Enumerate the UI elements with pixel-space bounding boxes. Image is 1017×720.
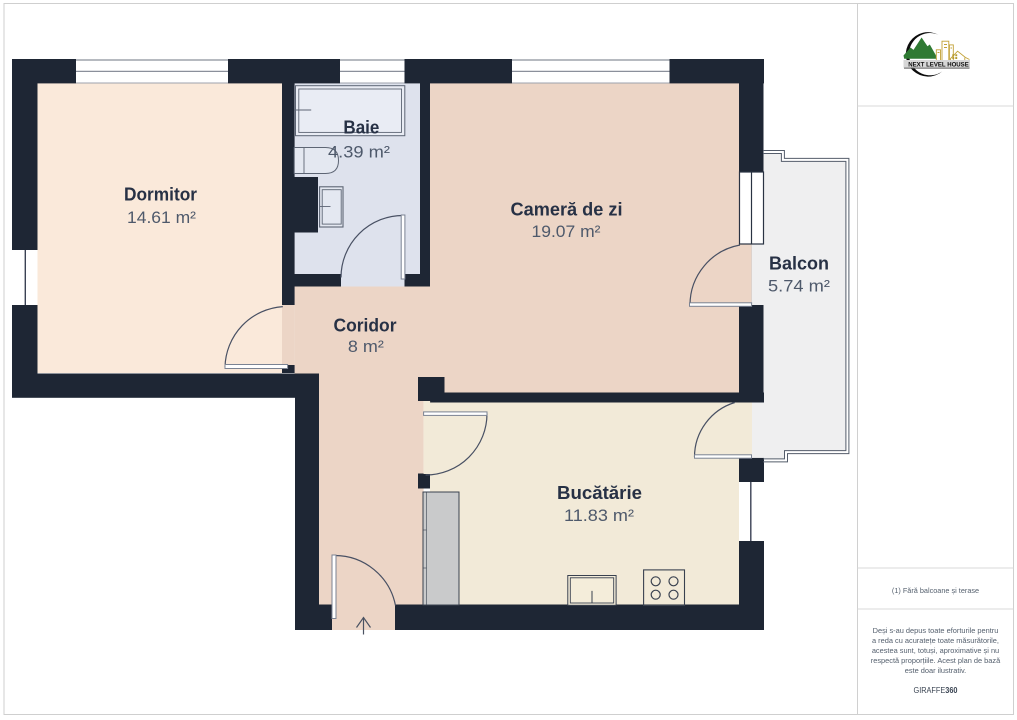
svg-text:a reda cu acuratețe toate măsu: a reda cu acuratețe toate măsurătorile, bbox=[872, 636, 999, 645]
svg-text:acestea sunt, totuși, aproxima: acestea sunt, totuși, aproximative și nu bbox=[872, 646, 999, 655]
svg-text:Deși s-au depus toate eforturi: Deși s-au depus toate eforturile pentru bbox=[873, 626, 999, 635]
svg-text:Bucătărie: Bucătărie bbox=[557, 483, 642, 503]
svg-text:(1) Fără balcoane și terase: (1) Fără balcoane și terase bbox=[892, 586, 979, 595]
svg-text:este doar ilustrativ.: este doar ilustrativ. bbox=[905, 666, 966, 675]
svg-text:4.39 m²: 4.39 m² bbox=[328, 143, 390, 162]
svg-text:19.07 m²: 19.07 m² bbox=[532, 222, 601, 241]
svg-text:8 m²: 8 m² bbox=[348, 337, 384, 356]
svg-text:Dormitor: Dormitor bbox=[124, 185, 197, 205]
svg-text:Baie: Baie bbox=[343, 118, 379, 138]
svg-text:GIRAFFE360: GIRAFFE360 bbox=[914, 685, 958, 695]
svg-text:respectă proporțiile. Acest pl: respectă proporțiile. Acest plan de bază bbox=[871, 656, 1001, 665]
svg-text:11.83 m²: 11.83 m² bbox=[564, 506, 634, 525]
svg-text:NEXT LEVEL HOUSE: NEXT LEVEL HOUSE bbox=[908, 61, 969, 68]
svg-text:Balcon: Balcon bbox=[769, 254, 829, 274]
svg-text:Cameră de zi: Cameră de zi bbox=[511, 199, 623, 219]
svg-text:Coridor: Coridor bbox=[334, 315, 397, 335]
svg-text:5.74 m²: 5.74 m² bbox=[768, 277, 830, 296]
svg-text:14.61 m²: 14.61 m² bbox=[127, 208, 196, 227]
